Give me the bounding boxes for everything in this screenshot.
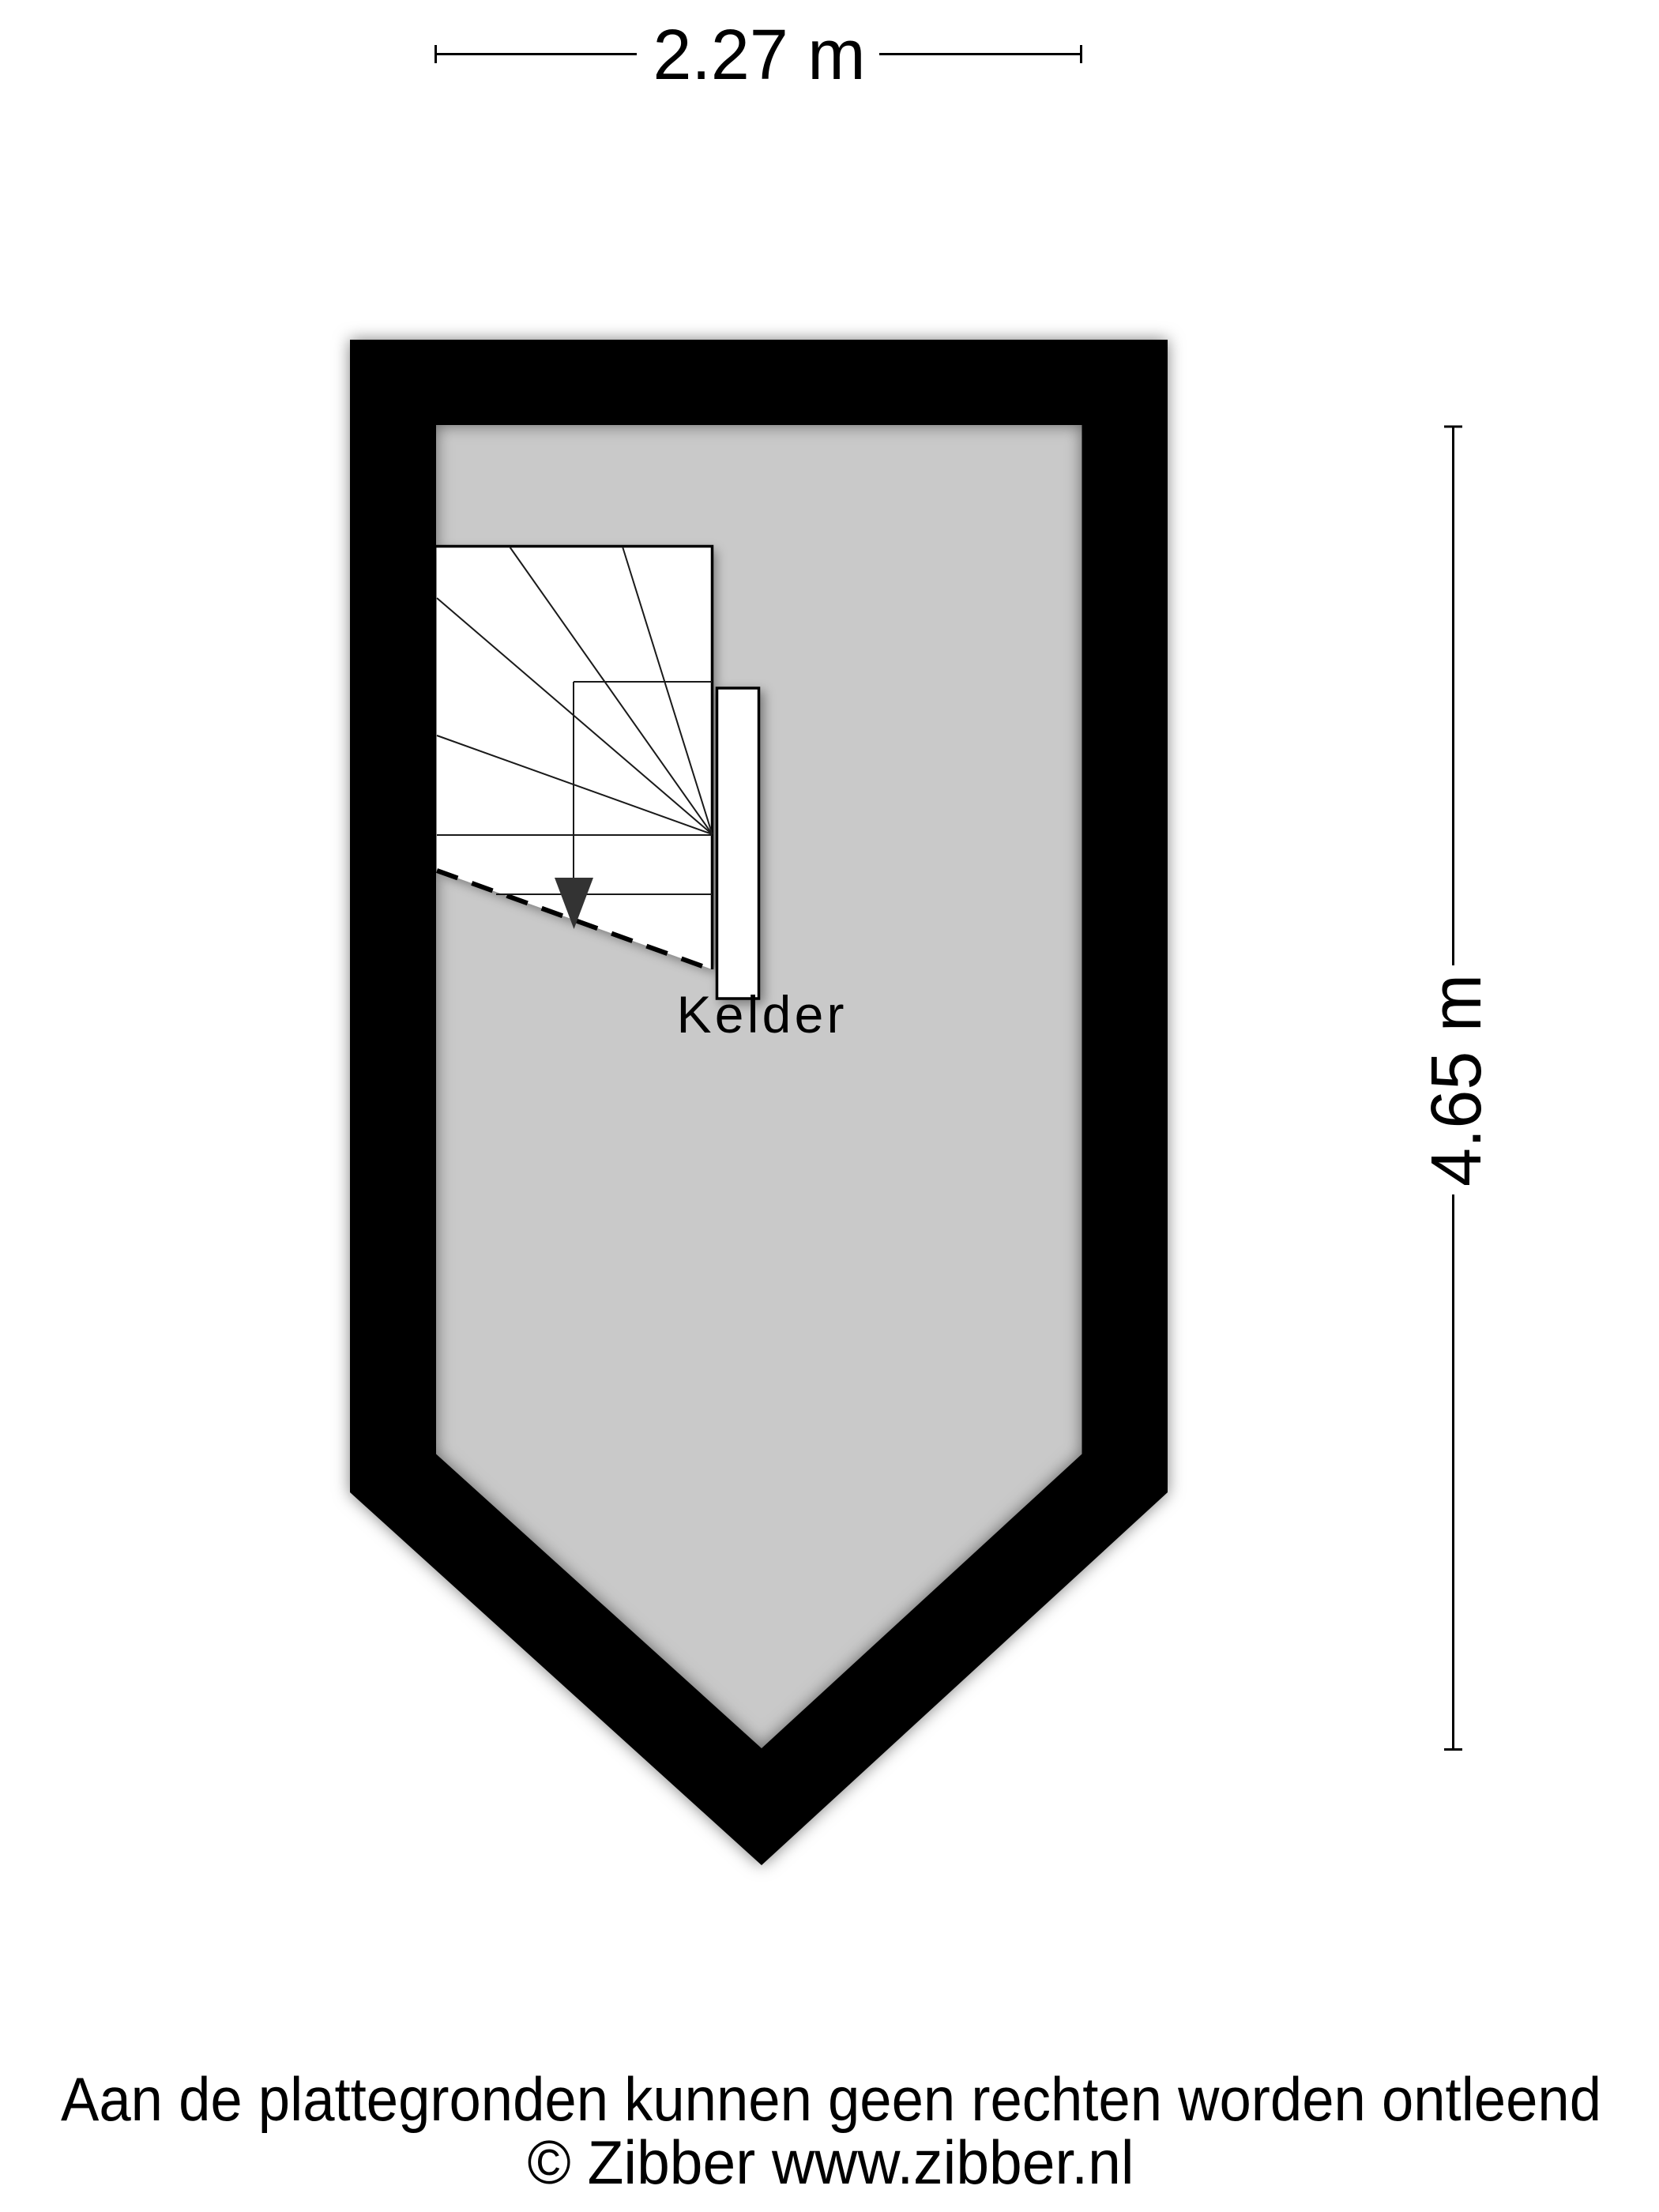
svg-text:2.27 m: 2.27 m [653, 16, 866, 95]
svg-text:© Zibber www.zibber.nl: © Zibber www.zibber.nl [528, 2127, 1134, 2197]
svg-text:4.65 m: 4.65 m [1417, 974, 1496, 1187]
svg-text:Aan de plattegronden kunnen ge: Aan de plattegronden kunnen geen rechten… [61, 2064, 1601, 2134]
